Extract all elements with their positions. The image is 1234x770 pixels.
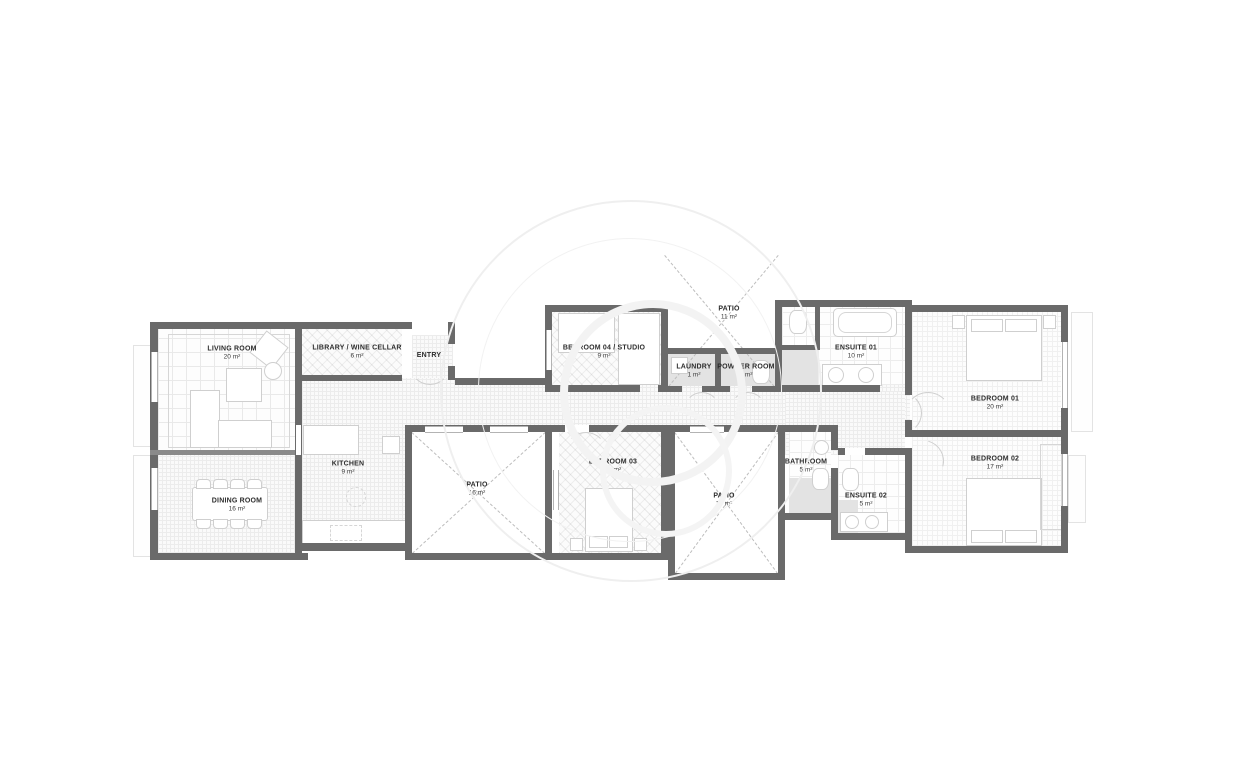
wall [405, 553, 552, 560]
wall [838, 533, 912, 540]
door-arc [410, 345, 450, 385]
door-arc [730, 392, 766, 428]
room-label-patio-left: PATIO 16 m² [466, 482, 487, 497]
room-label-bedroom-01: BEDROOM 01 20 m² [971, 396, 1019, 411]
bathtub-inner [838, 312, 892, 333]
wall [448, 366, 455, 380]
wall [905, 546, 1068, 553]
wardrobe [1040, 444, 1062, 530]
pillow [589, 536, 608, 548]
wall [782, 513, 838, 520]
wall [658, 385, 668, 392]
nightstand [634, 538, 647, 551]
wall [668, 425, 675, 580]
wall [545, 385, 640, 392]
kitchen-stool [346, 487, 366, 507]
wall [1061, 506, 1068, 553]
balcony-right-bottom [1068, 455, 1086, 523]
window [425, 426, 463, 433]
room-label-laundry: LAUNDRY 1 m² [676, 364, 711, 379]
sink [858, 367, 874, 383]
wall [150, 322, 302, 329]
door-opening [845, 448, 865, 455]
floor-plan-canvas: LIVING ROOM 20 m² DINING ROOM 16 m² LIBR… [0, 0, 1234, 770]
window [296, 425, 301, 455]
room-label-library-wine-cellar: LIBRARY / WINE CELLAR 6 m² [312, 345, 401, 360]
wall [831, 425, 838, 450]
dining-chair [213, 519, 228, 529]
pillow [1005, 530, 1037, 543]
wall [702, 386, 730, 392]
wall [775, 300, 912, 307]
room-label-bathroom: BATHROOM 5 m² [785, 459, 827, 474]
sink [845, 515, 859, 529]
dining-chair [230, 519, 245, 529]
wall [815, 300, 820, 348]
window [553, 470, 559, 510]
kitchen-stove [330, 525, 362, 541]
wall [545, 425, 552, 560]
pillow [971, 530, 1003, 543]
room-label-bedroom-04-studio: BEDROOM 04 / STUDIO 9 m² [563, 345, 645, 360]
dining-chair [196, 519, 211, 529]
pillow [971, 319, 1003, 332]
wall [905, 430, 1068, 437]
room-label-dining-room: DINING ROOM 16 m² [212, 498, 262, 513]
wall [405, 425, 412, 560]
wall [905, 305, 1068, 312]
sofa [190, 390, 220, 448]
wall [775, 345, 820, 350]
wall [778, 425, 785, 580]
window [1062, 342, 1068, 408]
toilet [789, 310, 807, 334]
wall [295, 543, 412, 551]
room-label-entry: ENTRY [417, 352, 441, 360]
wall [455, 378, 545, 385]
wall [831, 468, 838, 540]
kitchen-island [303, 425, 359, 455]
room-label-bedroom-02: BEDROOM 02 17 m² [971, 456, 1019, 471]
dining-chair [230, 479, 245, 489]
dining-chair [213, 479, 228, 489]
wall [302, 322, 412, 329]
room-label-bedroom-03: BEDROOM 03 16 m² [589, 459, 637, 474]
wall [1061, 408, 1068, 454]
window [490, 426, 528, 433]
wall [668, 425, 785, 432]
coffee-table [226, 368, 262, 402]
wall [545, 305, 668, 312]
side-table [264, 362, 282, 380]
window [690, 426, 724, 433]
wall [905, 448, 912, 540]
wall [668, 573, 785, 580]
room-label-ensuite-01: ENSUITE 01 10 m² [835, 345, 877, 360]
sofa-chaise [218, 420, 272, 448]
wall [752, 386, 775, 392]
wall [150, 450, 302, 455]
wall [782, 425, 838, 432]
nightstand [570, 538, 583, 551]
wall [905, 300, 912, 395]
wall [302, 375, 402, 381]
sink [814, 440, 829, 455]
sink [828, 367, 844, 383]
wall [661, 305, 668, 392]
room-label-patio-right: PATIO 17 m² [713, 493, 734, 508]
room-label-ensuite-02: ENSUITE 02 5 m² [845, 493, 887, 508]
wall [775, 385, 880, 392]
window [151, 352, 158, 402]
pillow [1005, 319, 1037, 332]
toilet [842, 468, 859, 491]
room-label-living-room: LIVING ROOM 20 m² [207, 346, 256, 361]
kitchen-sink [382, 436, 400, 454]
dining-chair [247, 479, 262, 489]
wall [448, 322, 455, 344]
room-label-kitchen: KITCHEN 9 m² [332, 461, 365, 476]
room-label-powder-room: POWDER ROOM 2 m² [717, 364, 774, 379]
room-label-patio-top: PATIO 11 m² [718, 306, 739, 321]
wall [668, 348, 775, 354]
wall [661, 425, 668, 560]
wall [552, 553, 668, 560]
door-opening [565, 425, 589, 432]
window [546, 330, 552, 370]
door-arc [684, 392, 720, 428]
window [151, 468, 158, 510]
sink [865, 515, 879, 529]
dining-chair [196, 479, 211, 489]
window [1062, 454, 1068, 506]
wall [668, 386, 682, 392]
ensuite-01-shower-floor [782, 350, 818, 385]
pillow [609, 536, 628, 548]
dining-chair [247, 519, 262, 529]
nightstand [1043, 315, 1056, 329]
balcony-right-top [1071, 312, 1093, 432]
nightstand [952, 315, 965, 329]
wall [150, 553, 308, 560]
wall [1061, 305, 1068, 342]
